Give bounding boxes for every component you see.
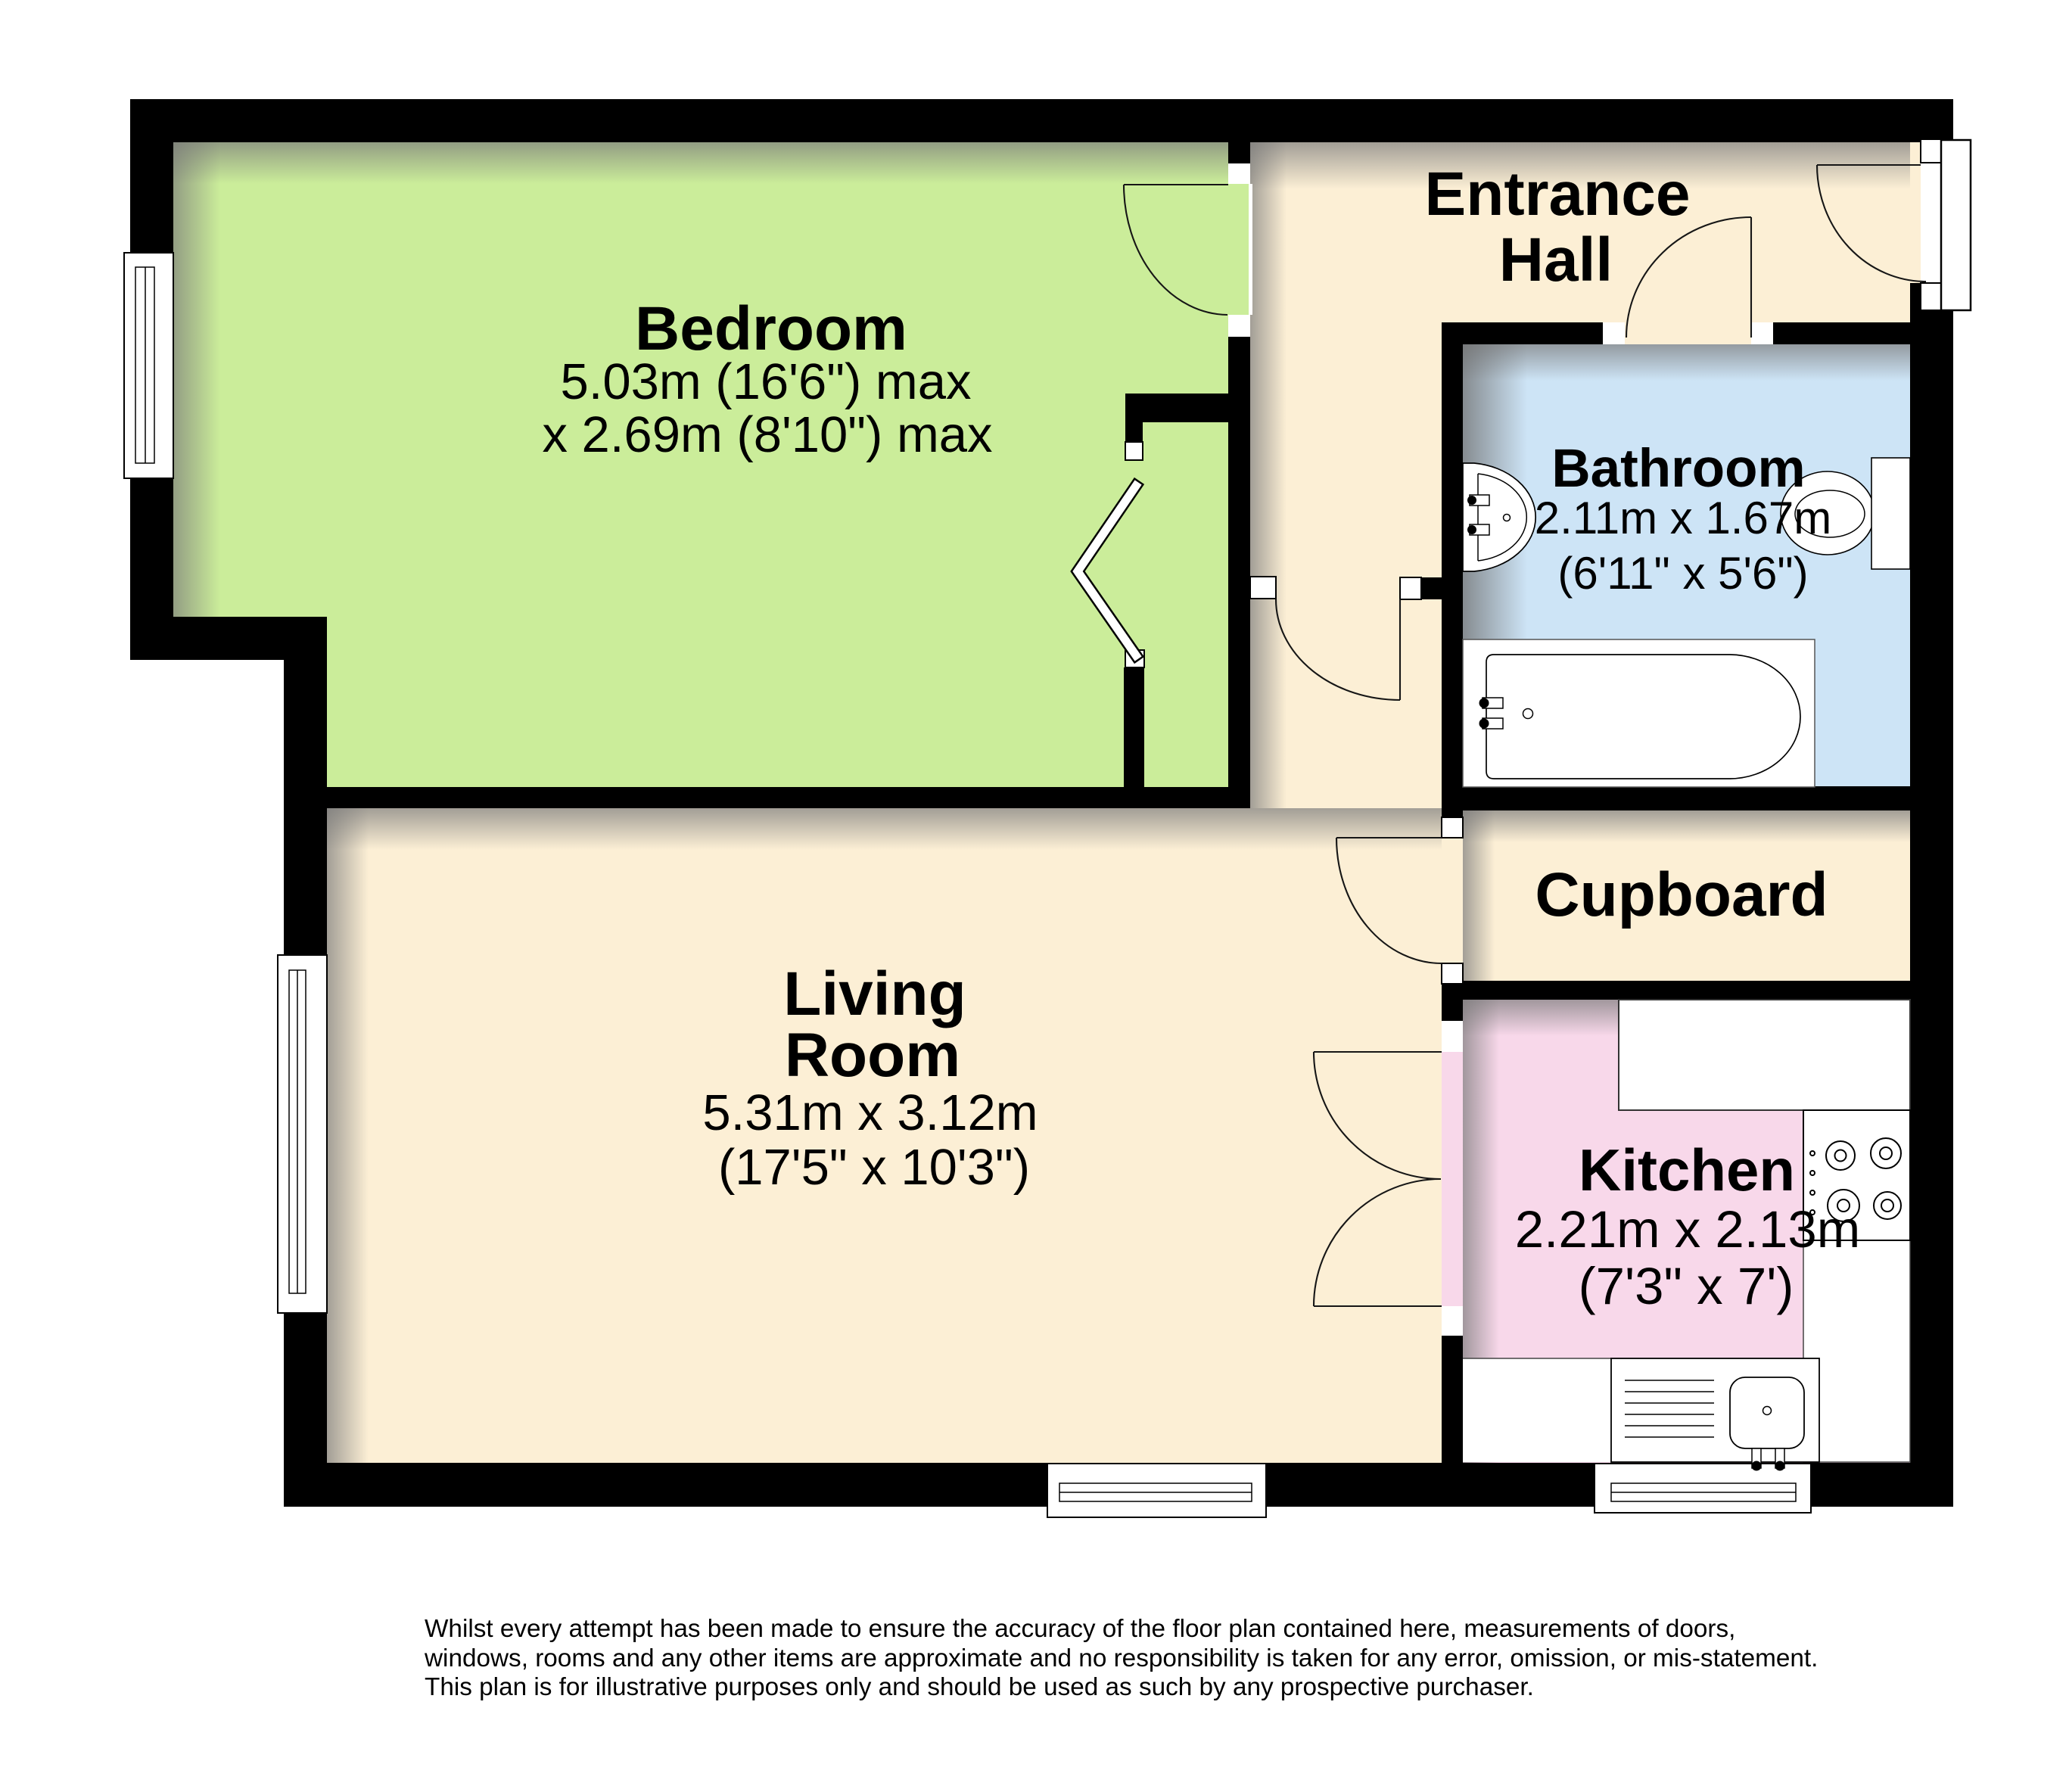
svg-text:(7'3" x 7'): (7'3" x 7'): [1579, 1257, 1794, 1315]
svg-text:Kitchen: Kitchen: [1579, 1137, 1795, 1203]
svg-text:This plan is for illustrative: This plan is for illustrative purposes o…: [425, 1673, 1534, 1701]
svg-text:Entrance: Entrance: [1425, 160, 1691, 229]
svg-text:Living: Living: [783, 960, 966, 1028]
svg-text:(17'5" x 10'3"): (17'5" x 10'3"): [718, 1139, 1030, 1196]
svg-text:x 2.69m (8'10") max: x 2.69m (8'10") max: [542, 406, 992, 463]
svg-text:Bathroom: Bathroom: [1551, 439, 1805, 499]
svg-text:Whilst every attempt has been: Whilst every attempt has been made to en…: [425, 1615, 1735, 1643]
svg-text:Cupboard: Cupboard: [1535, 860, 1828, 929]
svg-text:Room: Room: [785, 1021, 960, 1090]
svg-text:2.11m x 1.67m: 2.11m x 1.67m: [1535, 493, 1831, 543]
svg-text:5.03m (16'6") max: 5.03m (16'6") max: [560, 353, 971, 410]
svg-text:windows, rooms and any other i: windows, rooms and any other items are a…: [424, 1644, 1818, 1672]
svg-text:5.31m x 3.12m: 5.31m x 3.12m: [702, 1084, 1038, 1141]
svg-text:(6'11" x 5'6"): (6'11" x 5'6"): [1557, 548, 1808, 599]
svg-text:Hall: Hall: [1499, 226, 1613, 294]
svg-text:2.21m x 2.13m: 2.21m x 2.13m: [1515, 1200, 1860, 1258]
